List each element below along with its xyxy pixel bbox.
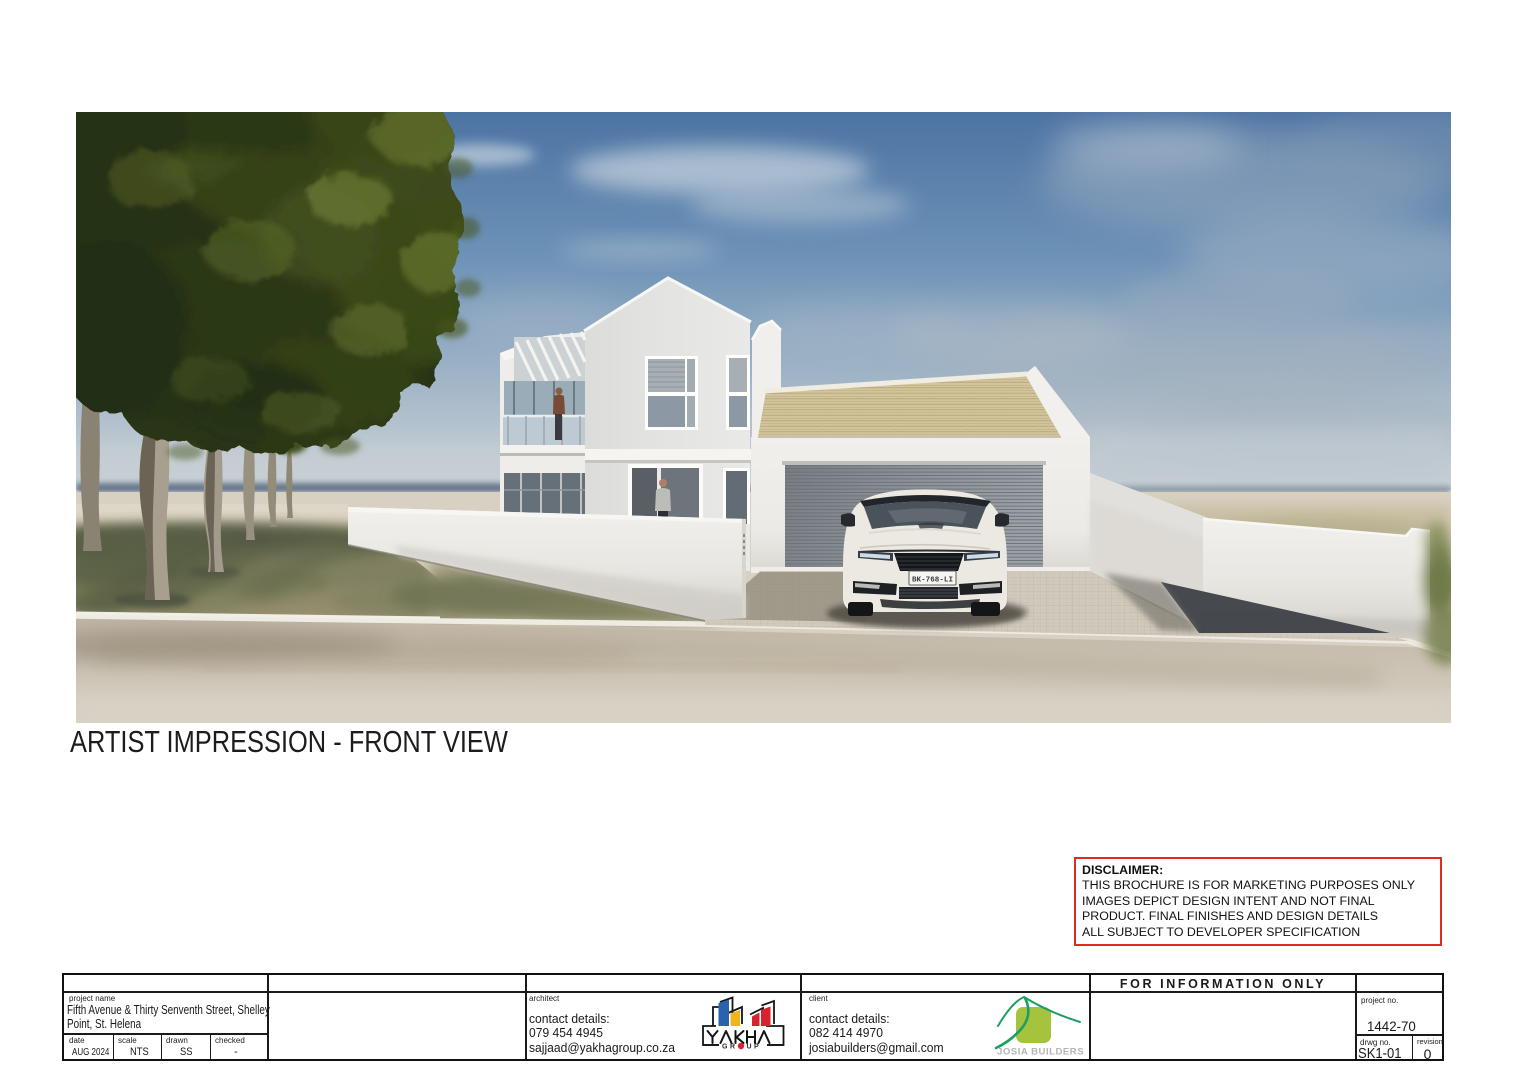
svg-text:P: P [754, 1044, 759, 1051]
svg-text:JOSIA BUILDERS: JOSIA BUILDERS [997, 1047, 1084, 1058]
svg-text:R: R [730, 1044, 735, 1051]
svg-text:U: U [747, 1044, 752, 1051]
svg-text:G: G [722, 1044, 728, 1051]
svg-text:BK-768-LI: BK-768-LI [912, 577, 953, 585]
